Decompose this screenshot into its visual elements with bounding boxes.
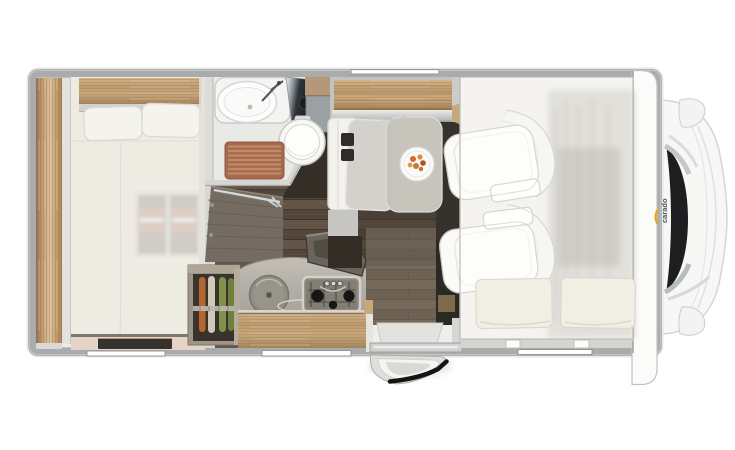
svg-text:carado: carado [660, 198, 669, 223]
